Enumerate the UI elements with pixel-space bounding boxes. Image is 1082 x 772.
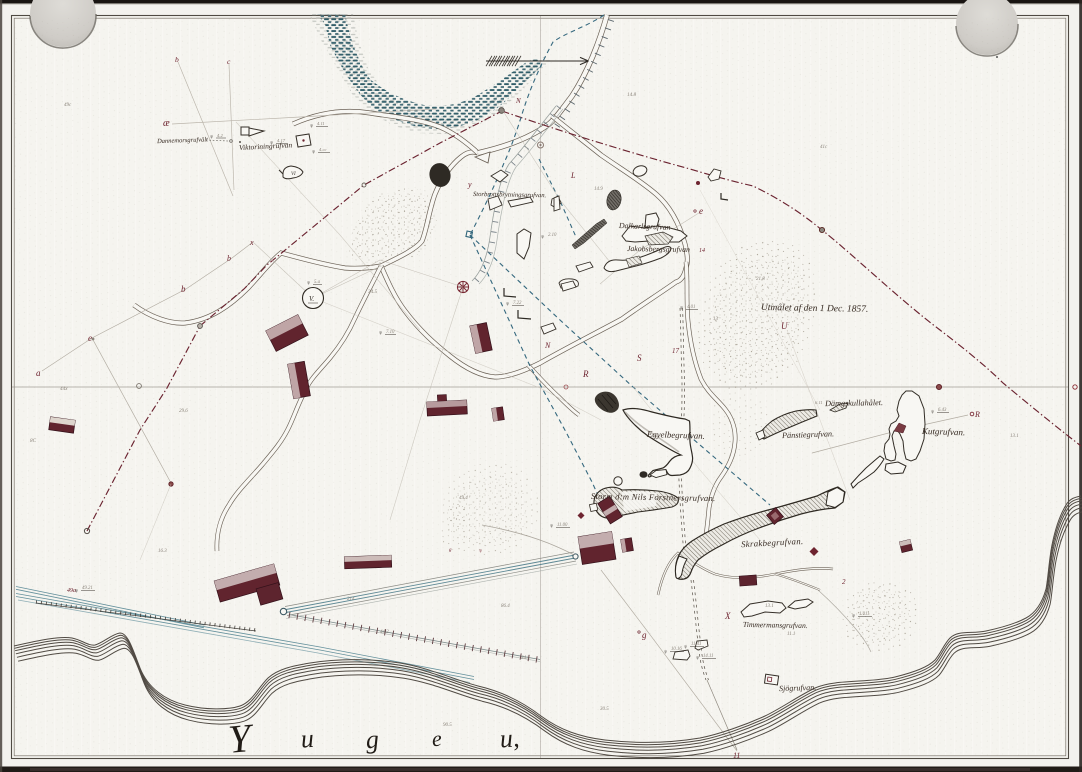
svg-text:4.11: 4.11	[317, 121, 325, 126]
svg-text:♀: ♀	[74, 587, 79, 595]
svg-text:30.5: 30.5	[600, 707, 609, 712]
svg-text:y: y	[467, 180, 472, 189]
svg-text:♀: ♀	[309, 122, 314, 130]
svg-text:14.9: 14.9	[594, 187, 603, 192]
svg-text:X: X	[724, 611, 731, 621]
svg-text:41c: 41c	[820, 145, 828, 150]
svg-text:4.cc: 4.cc	[319, 147, 327, 152]
svg-text:Timmermansgrufvan.: Timmermansgrufvan.	[743, 620, 808, 630]
svg-text:49c: 49c	[64, 103, 72, 108]
svg-text:♀: ♀	[269, 139, 274, 147]
svg-text:4.17: 4.17	[277, 138, 286, 143]
svg-text:VI: VI	[291, 172, 296, 177]
svg-text:84.5: 84.5	[521, 656, 530, 661]
svg-text:♀: ♀	[663, 648, 668, 656]
svg-text:214: 214	[347, 597, 355, 602]
svg-text:14: 14	[699, 247, 705, 254]
svg-text:R: R	[974, 410, 980, 419]
svg-text:N: N	[544, 341, 551, 350]
svg-text:u,: u,	[499, 723, 520, 753]
svg-text:90.5: 90.5	[443, 723, 452, 728]
svg-text:44.2: 44.2	[380, 630, 389, 635]
svg-text:29.6: 29.6	[179, 409, 188, 414]
svg-text:♀: ♀	[851, 612, 856, 620]
svg-text:b: b	[175, 55, 179, 64]
svg-text:♀: ♀	[306, 279, 311, 287]
svg-text:♀: ♀	[679, 304, 684, 312]
svg-text:x: x	[249, 238, 254, 247]
svg-text:11.1: 11.1	[787, 632, 795, 637]
svg-text:13.1: 13.1	[765, 604, 774, 609]
svg-text:Kutgrufvan.: Kutgrufvan.	[921, 426, 966, 438]
svg-text:♀: ♀	[378, 329, 383, 337]
svg-text:Storbrottsbrytningsgrufvan.: Storbrottsbrytningsgrufvan.	[473, 191, 547, 199]
svg-text:N: N	[515, 97, 521, 105]
svg-text:S: S	[637, 353, 642, 363]
svg-text:Jakobsbergsgrufvan: Jakobsbergsgrufvan	[627, 244, 690, 254]
svg-text:13.1: 13.1	[1010, 434, 1019, 439]
svg-text:♀: ♀	[209, 133, 214, 141]
svg-text:34.5: 34.5	[368, 288, 377, 295]
svg-text:21.8: 21.8	[756, 277, 765, 282]
svg-text:Sjögrufvan.: Sjögrufvan.	[779, 683, 816, 693]
svg-text:Dämgskullahålet.: Dämgskullahålet.	[824, 398, 883, 408]
svg-text:Pänstiegrufvan.: Pänstiegrufvan.	[781, 429, 834, 440]
svg-text:44x: 44x	[60, 385, 68, 392]
svg-text:Dalkarlsgrufvan: Dalkarlsgrufvan	[618, 221, 671, 232]
svg-text:13: 13	[713, 317, 719, 322]
svg-text:♀: ♀	[549, 522, 554, 530]
svg-text:11.1: 11.1	[1053, 540, 1061, 545]
svg-text:11: 11	[733, 751, 740, 760]
svg-text:49.4: 49.4	[459, 496, 468, 501]
svg-text:86.4: 86.4	[501, 604, 510, 609]
svg-text:U: U	[781, 321, 788, 331]
svg-text:V.: V.	[309, 295, 314, 303]
svg-text:♀: ♀	[311, 148, 316, 156]
svg-text:e: e	[88, 333, 92, 343]
svg-text:2: 2	[842, 578, 846, 586]
svg-text:Utmålet af den 1 Dec. 1857.: Utmålet af den 1 Dec. 1857.	[761, 302, 869, 315]
svg-text:6.11: 6.11	[815, 400, 823, 405]
svg-text:æ: æ	[163, 118, 170, 129]
svg-text:♀: ♀	[540, 233, 545, 241]
svg-text:♀: ♀	[505, 300, 510, 308]
svg-text:g: g	[365, 725, 380, 755]
svg-text:8C: 8C	[30, 438, 37, 444]
svg-text:e: e	[699, 206, 703, 216]
svg-text:2.10: 2.10	[548, 233, 557, 238]
svg-text:e: e	[431, 726, 443, 752]
svg-text:♀: ♀	[478, 547, 483, 555]
svg-text:17: 17	[672, 347, 680, 355]
svg-text:L: L	[570, 171, 576, 180]
svg-text:4.2: 4.2	[217, 133, 223, 138]
svg-text:♀: ♀	[683, 643, 688, 651]
svg-text:R: R	[582, 369, 589, 379]
svg-text:14.8: 14.8	[627, 91, 636, 98]
svg-text:Egyelbegrufvan.: Egyelbegrufvan.	[646, 429, 705, 441]
svg-text:b: b	[227, 254, 231, 263]
svg-text:♀: ♀	[695, 654, 700, 662]
svg-text:b: b	[181, 284, 186, 294]
svg-text:a: a	[36, 368, 41, 378]
svg-text:16.3: 16.3	[158, 549, 167, 554]
svg-text:u: u	[300, 724, 315, 754]
svg-text:g: g	[642, 630, 647, 640]
svg-text:♀: ♀	[930, 408, 935, 416]
